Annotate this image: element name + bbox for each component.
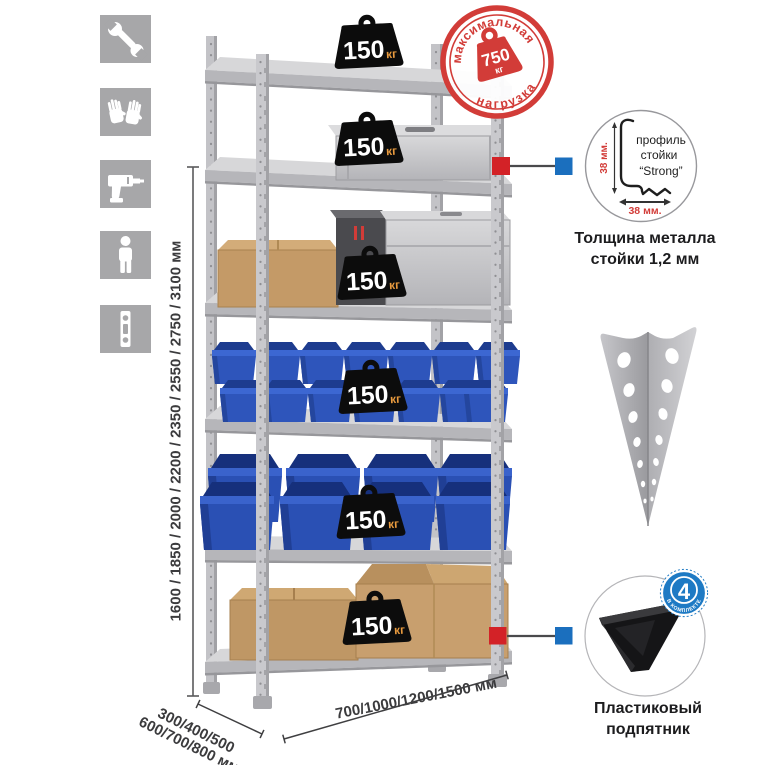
load-badge-shelf-3: 150 кг: [324, 243, 419, 307]
person-icon: [100, 231, 151, 279]
svg-text:150: 150: [344, 506, 387, 535]
svg-text:150: 150: [350, 612, 393, 641]
product-infographic: 150 кг 150 кг 150 кг 150 кг 150 кг 150 к…: [0, 0, 765, 765]
svg-text:кг: кг: [386, 47, 398, 62]
svg-text:кг: кг: [388, 517, 400, 532]
post-profile-detail: 38 мм. 38 мм. профиль стойки “Strong”: [571, 96, 711, 236]
height-dimension-label: 1600 / 1850 / 2000 / 2200 / 2350 / 2550 …: [168, 241, 185, 622]
wrench-icon: [100, 15, 151, 63]
svg-text:кг: кг: [389, 278, 401, 293]
svg-text:кг: кг: [394, 623, 406, 638]
svg-text:150: 150: [345, 267, 388, 296]
gloves-icon: [100, 88, 151, 136]
sidebar-icon-assembly: [100, 15, 151, 63]
load-badge-shelf-2: 150 кг: [321, 109, 416, 173]
svg-text:4: 4: [678, 579, 691, 604]
svg-text:“Strong”: “Strong”: [639, 164, 682, 178]
load-badge-shelf-4: 150 кг: [325, 357, 420, 421]
sidebar-icon-gloves: [100, 88, 151, 136]
quantity-badge: 4 В КОМПЛЕКТЕ: [659, 568, 709, 618]
svg-text:150: 150: [342, 133, 385, 162]
load-badge-shelf-6: 150 кг: [329, 588, 424, 652]
foot-caption: Пластиковый подпятник: [558, 699, 738, 741]
sidebar-icon-person: [100, 231, 151, 279]
svg-text:кг: кг: [386, 144, 398, 159]
level-icon: [100, 305, 151, 353]
corner-post-image: [593, 298, 705, 533]
svg-text:38 мм.: 38 мм.: [599, 142, 610, 174]
sidebar-icon-drill: [100, 160, 151, 208]
load-badge-shelf-1: 150 кг: [321, 12, 416, 76]
svg-text:150: 150: [346, 381, 389, 410]
svg-text:кг: кг: [390, 392, 402, 407]
drill-icon: [100, 160, 151, 208]
sidebar-icon-level: [100, 305, 151, 353]
load-badge-shelf-5: 150 кг: [323, 482, 418, 546]
svg-text:38 мм.: 38 мм.: [628, 205, 661, 217]
svg-text:профиль: профиль: [636, 133, 686, 147]
cardboard-box-small: [218, 240, 338, 307]
svg-text:стойки: стойки: [641, 148, 678, 162]
profile-caption: Толщина металла стойки 1,2 мм: [555, 229, 735, 271]
svg-text:150: 150: [342, 36, 385, 65]
